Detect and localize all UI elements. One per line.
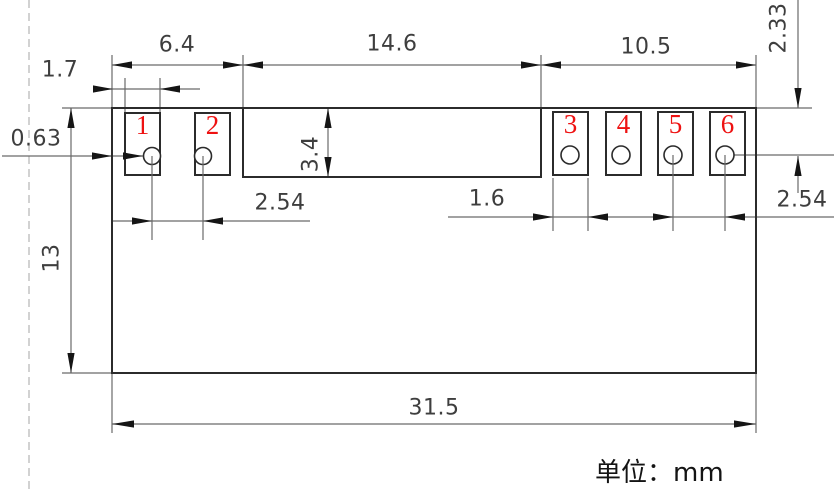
pad-5-number: 5 — [658, 111, 693, 138]
pad-4-number: 4 — [606, 111, 641, 138]
body-outline — [112, 108, 756, 373]
dim-label-14-6: 14.6 — [367, 32, 418, 57]
dim-label-10-5: 10.5 — [621, 35, 672, 60]
dim-label-2-54-left: 2.54 — [255, 191, 306, 216]
pad3-edge-extension-lines — [553, 178, 588, 231]
right-hole-center-extensions — [673, 155, 725, 231]
pad-6-number: 6 — [710, 111, 745, 138]
dim-label-31-5: 31.5 — [409, 396, 460, 421]
pad-3-number: 3 — [553, 111, 588, 138]
dim-label-2-33: 2.33 — [767, 3, 792, 54]
pad-1-number: 1 — [125, 112, 160, 139]
top-extension-lines — [112, 55, 756, 108]
center-block-outline — [243, 108, 541, 177]
dim-label-1-6: 1.6 — [469, 187, 506, 212]
dim-label-6-4: 6.4 — [159, 33, 196, 58]
dim-label-1-7: 1.7 — [42, 58, 79, 83]
pad-3-hole — [561, 146, 579, 164]
dim-label-13: 13 — [40, 244, 65, 273]
unit-note: 单位：mm — [595, 452, 724, 489]
technical-drawing: 6.4 14.6 10.5 1.7 0.63 3.4 13 2.33 2.54 … — [0, 0, 836, 490]
dim-label-2-54-right: 2.54 — [777, 188, 828, 213]
pad-2-number: 2 — [195, 112, 230, 139]
dim-label-0-63: 0.63 — [11, 127, 62, 152]
pad-4-hole — [612, 146, 630, 164]
dim-2-33-arrows — [794, 88, 801, 176]
dim-label-3-4: 3.4 — [299, 136, 324, 173]
